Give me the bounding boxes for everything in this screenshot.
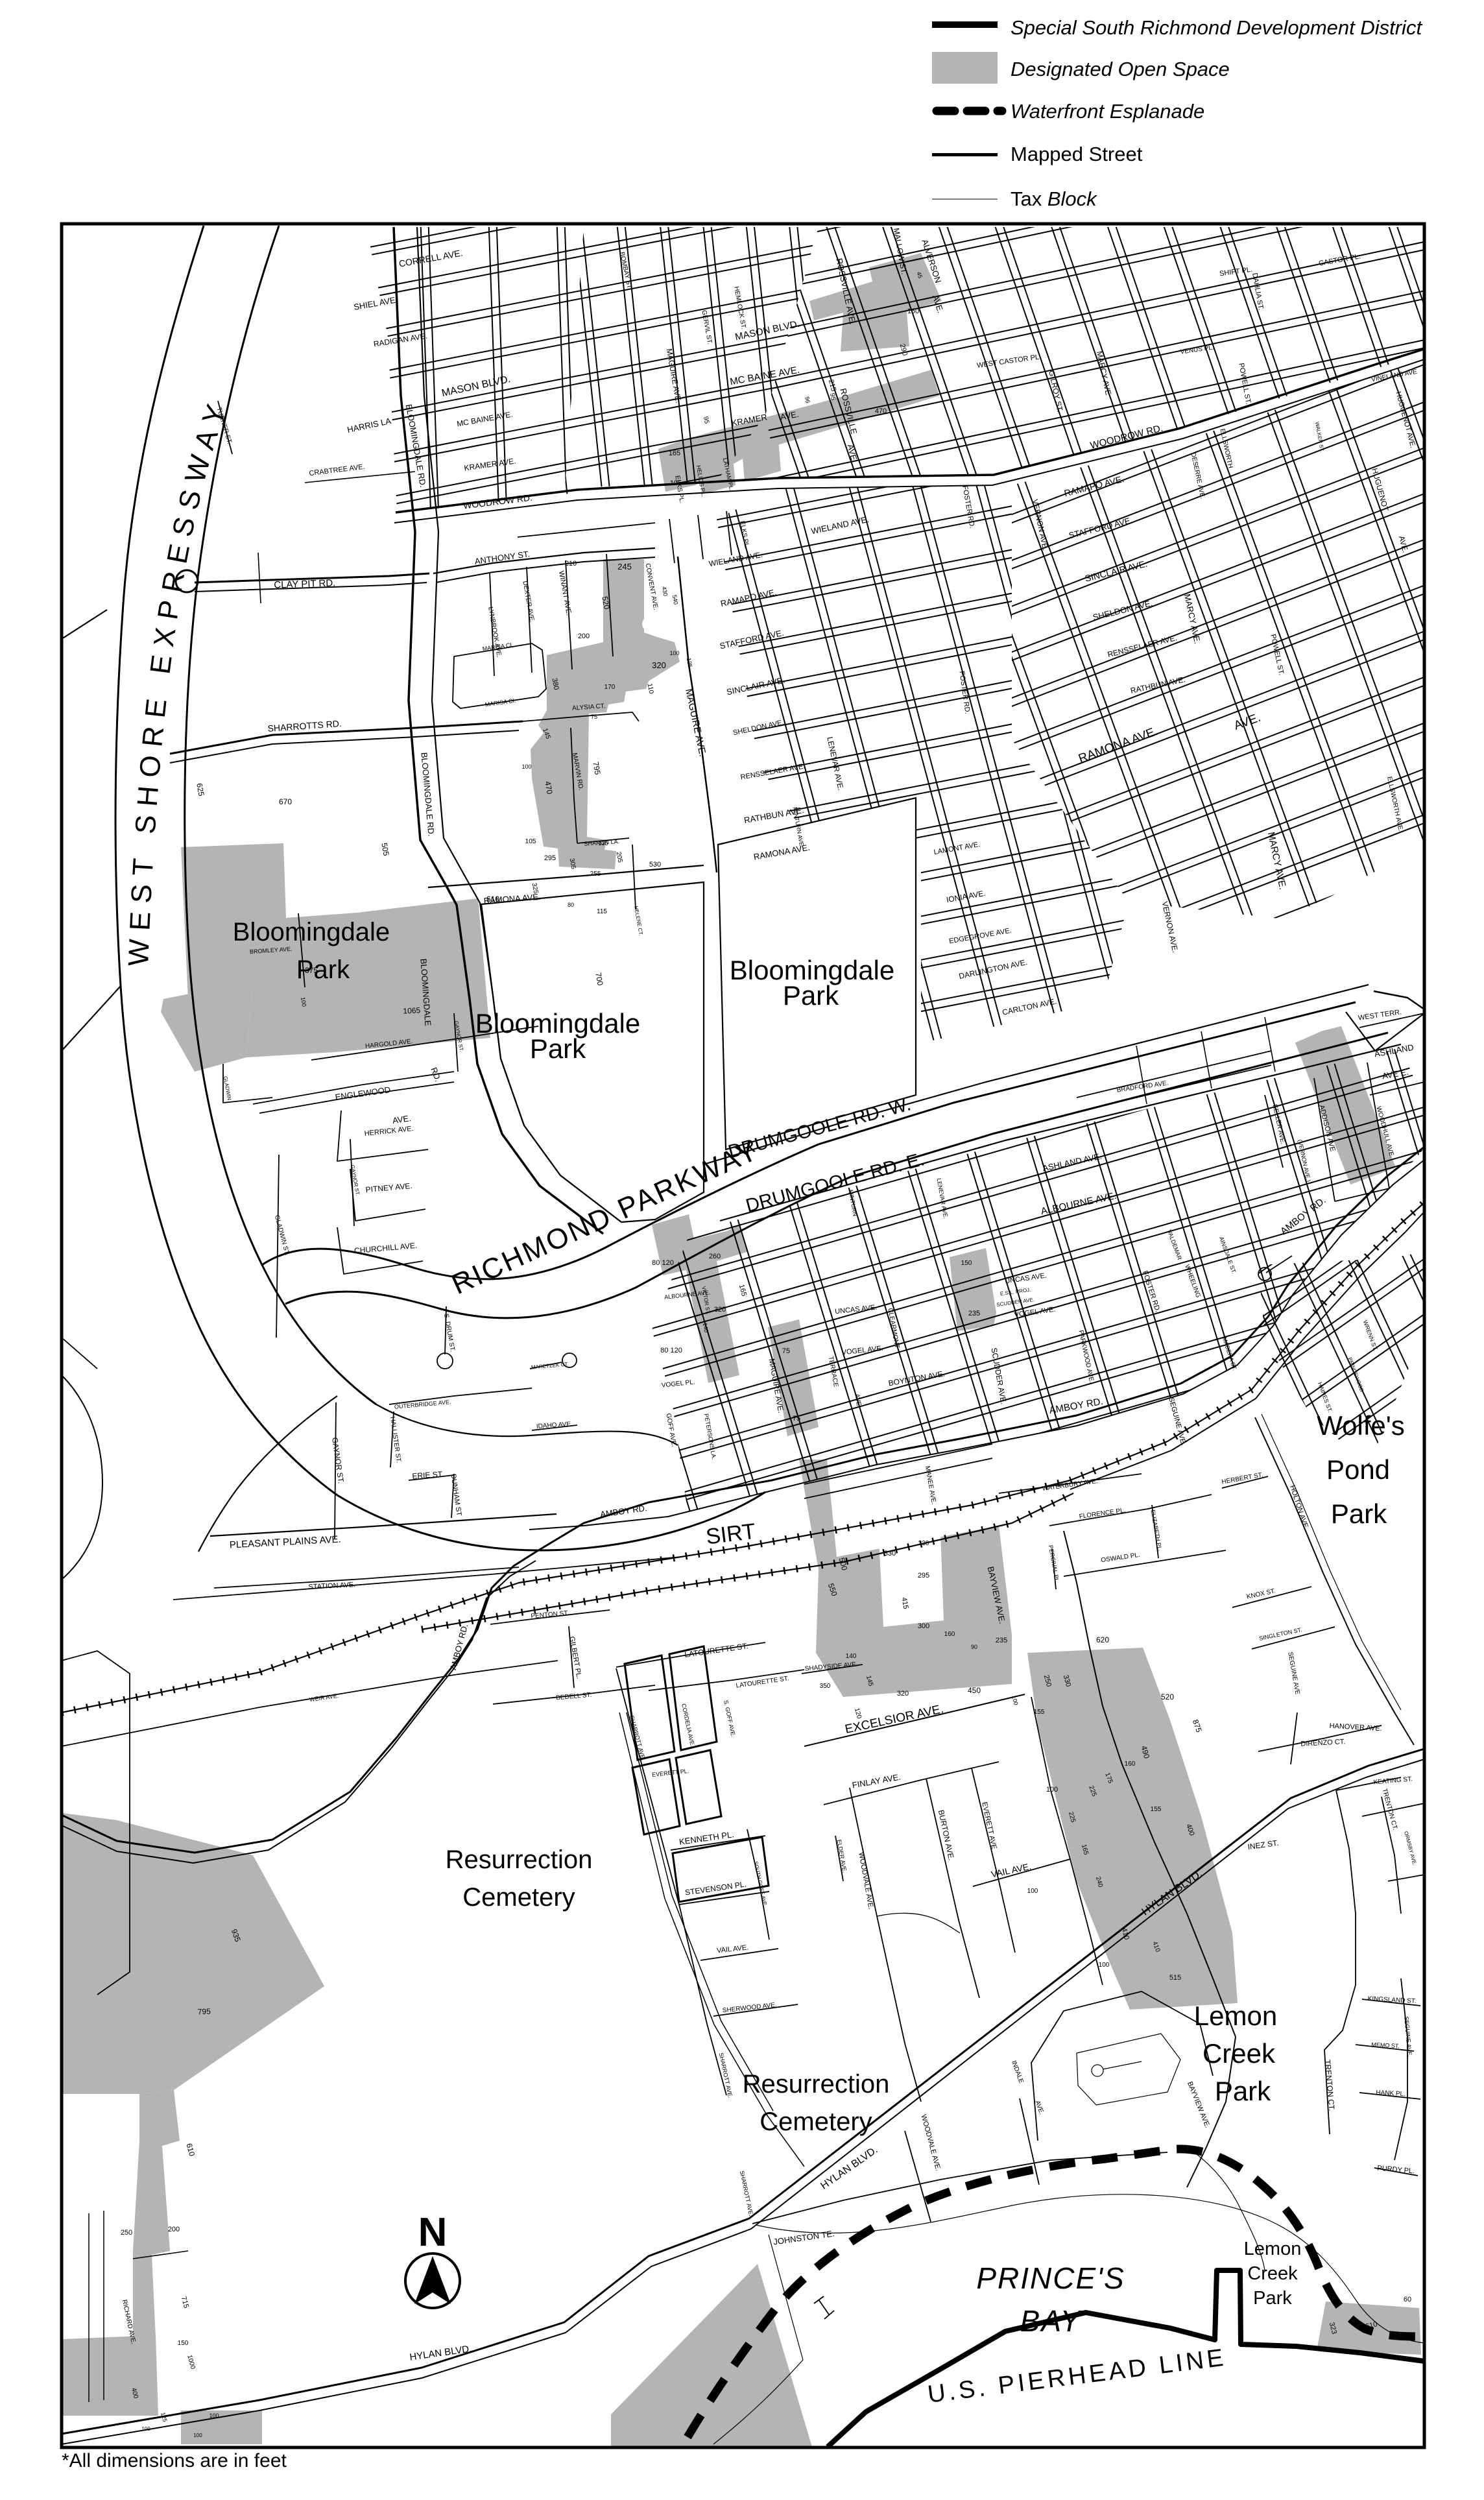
svg-text:530: 530	[649, 861, 661, 869]
svg-text:795: 795	[197, 2006, 211, 2016]
svg-text:Park: Park	[1331, 1498, 1387, 1529]
svg-text:Creek: Creek	[1247, 2263, 1298, 2284]
svg-text:Designated Open Space: Designated Open Space	[1011, 58, 1230, 80]
svg-text:Bloomingdale: Bloomingdale	[233, 918, 390, 946]
svg-text:90: 90	[971, 1644, 977, 1650]
svg-text:450: 450	[968, 1686, 981, 1695]
svg-text:610: 610	[486, 895, 499, 904]
svg-text:Special South Richmond Develop: Special South Richmond Development Distr…	[1011, 16, 1422, 39]
svg-text:520: 520	[1161, 1692, 1174, 1701]
svg-text:100: 100	[521, 763, 531, 770]
svg-text:75: 75	[782, 1347, 790, 1355]
svg-text:330: 330	[884, 1550, 896, 1557]
svg-text:60: 60	[1404, 2296, 1411, 2303]
svg-text:670: 670	[279, 797, 292, 806]
svg-text:160: 160	[907, 307, 919, 315]
svg-text:BAY: BAY	[1020, 2304, 1083, 2338]
svg-text:Waterfront Esplanade: Waterfront Esplanade	[1011, 100, 1204, 123]
svg-text:235: 235	[996, 1637, 1007, 1644]
svg-text:100: 100	[669, 650, 679, 656]
svg-text:Resurrection: Resurrection	[743, 2070, 890, 2098]
svg-text:CLAY PIT RD.: CLAY PIT RD.	[274, 577, 336, 590]
svg-text:140: 140	[846, 1653, 857, 1660]
svg-text:100: 100	[141, 2426, 150, 2432]
svg-text:Wolfe's: Wolfe's	[1317, 1410, 1405, 1441]
svg-text:Pond: Pond	[1326, 1454, 1390, 1485]
svg-text:260: 260	[709, 1253, 721, 1260]
svg-text:245: 245	[617, 562, 632, 571]
svg-text:165: 165	[669, 450, 680, 457]
svg-text:*All dimensions are in feet: *All dimensions are in feet	[62, 2450, 287, 2471]
svg-text:470: 470	[875, 407, 887, 415]
svg-text:N: N	[418, 2210, 448, 2255]
svg-text:100: 100	[1046, 1786, 1058, 1794]
svg-text:135: 135	[598, 840, 608, 847]
svg-text:Mapped Street: Mapped Street	[1011, 143, 1143, 165]
svg-text:105: 105	[525, 838, 536, 845]
svg-text:75: 75	[793, 1415, 800, 1423]
svg-text:620: 620	[1096, 1635, 1109, 1644]
svg-text:320: 320	[714, 1306, 726, 1314]
svg-text:Park: Park	[1215, 2076, 1271, 2106]
svg-text:100: 100	[209, 2412, 219, 2419]
svg-text:330: 330	[918, 1540, 929, 1547]
svg-text:Tax Block: Tax Block	[1011, 187, 1097, 210]
svg-text:100: 100	[193, 2433, 202, 2438]
svg-text:75: 75	[591, 714, 597, 720]
svg-text:Creek: Creek	[1203, 2038, 1276, 2069]
svg-text:80 120: 80 120	[660, 1347, 682, 1354]
svg-text:100: 100	[1027, 1888, 1038, 1895]
svg-text:PRINCE'S: PRINCE'S	[976, 2261, 1125, 2295]
svg-text:155: 155	[1034, 1709, 1045, 1716]
svg-text:80 120: 80 120	[652, 1259, 674, 1267]
svg-text:Park: Park	[530, 1033, 586, 1064]
svg-text:160: 160	[944, 1631, 955, 1638]
svg-text:96: 96	[804, 396, 811, 404]
svg-text:Cemetery: Cemetery	[462, 1883, 575, 1912]
svg-text:Cemetery: Cemetery	[760, 2108, 872, 2136]
svg-text:160: 160	[1125, 1761, 1136, 1768]
svg-text:150: 150	[178, 2340, 189, 2347]
svg-text:210: 210	[565, 560, 577, 568]
svg-text:105: 105	[670, 479, 682, 487]
svg-text:80: 80	[568, 902, 574, 908]
svg-text:235: 235	[968, 1310, 980, 1317]
svg-text:320: 320	[652, 660, 666, 670]
svg-text:295: 295	[544, 854, 556, 862]
svg-text:350: 350	[820, 1683, 831, 1690]
svg-text:255: 255	[590, 871, 601, 878]
svg-text:Park: Park	[1253, 2288, 1292, 2309]
svg-text:200: 200	[168, 2226, 180, 2233]
svg-text:115: 115	[597, 908, 607, 915]
svg-text:515: 515	[1169, 1974, 1181, 1982]
svg-text:Lemon: Lemon	[1194, 2001, 1277, 2031]
svg-text:375: 375	[305, 966, 318, 975]
svg-text:Resurrection: Resurrection	[446, 1845, 593, 1874]
svg-text:295: 295	[918, 1572, 929, 1580]
svg-text:155: 155	[1151, 1806, 1162, 1813]
svg-text:150: 150	[961, 1260, 972, 1267]
svg-text:Park: Park	[783, 980, 839, 1011]
svg-text:Lemon: Lemon	[1244, 2239, 1302, 2259]
svg-text:170: 170	[604, 684, 616, 691]
svg-text:200: 200	[578, 632, 590, 640]
svg-text:250: 250	[121, 2229, 132, 2237]
svg-text:1065: 1065	[403, 1005, 421, 1015]
svg-text:100: 100	[1099, 1962, 1110, 1969]
svg-text:320: 320	[897, 1690, 909, 1698]
svg-text:300: 300	[918, 1622, 929, 1630]
